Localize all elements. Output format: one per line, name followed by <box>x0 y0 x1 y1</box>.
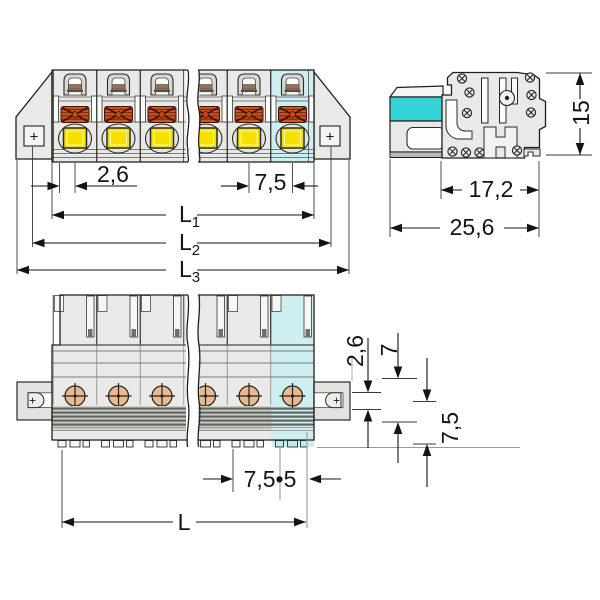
dim-label-depth-body: 17,2 <box>469 176 514 202</box>
side-slot <box>482 78 489 123</box>
connector-drawing: + + <box>0 0 600 600</box>
plug-top-strip <box>390 86 443 97</box>
highlighted-plug-band <box>390 97 443 121</box>
side-latch-foot <box>524 149 540 156</box>
rail-tab-left: + <box>17 382 52 420</box>
dim-label-rail-slot: 2,6 <box>342 335 368 367</box>
dim-label-l3: L3 <box>179 256 200 286</box>
plug-slot <box>407 128 445 150</box>
dim-label-depth-total: 25,6 <box>450 214 495 240</box>
dim-label-edge-offset: 2,6 <box>97 161 129 187</box>
dim-label-rail-width: 7 <box>376 344 402 357</box>
dim-label-rail-offset: 7,5 <box>437 412 463 444</box>
bottom-back-left-group <box>60 295 188 345</box>
plus-marker-icon: + <box>326 129 335 146</box>
dim-label-height: 15 <box>568 100 594 126</box>
plus-marker-icon: + <box>29 394 36 408</box>
plug-foot <box>390 152 443 158</box>
front-view: + + <box>16 65 350 166</box>
plus-marker-icon: + <box>333 394 340 408</box>
side-view <box>390 73 546 159</box>
plus-marker-icon: + <box>30 129 39 146</box>
dim-label-length: L <box>178 509 191 535</box>
rail-tab-right: + <box>314 382 350 420</box>
dim-label-pitch-count: 7,5•5 <box>244 466 297 492</box>
dim-label-pitch: 7,5 <box>255 169 287 195</box>
front-dimensions: 2,6 7,5 L1 L2 L3 <box>17 147 349 286</box>
dim-label-l1: L1 <box>179 201 200 231</box>
bottom-view: + + <box>17 290 352 450</box>
dim-label-l2: L2 <box>179 229 200 259</box>
